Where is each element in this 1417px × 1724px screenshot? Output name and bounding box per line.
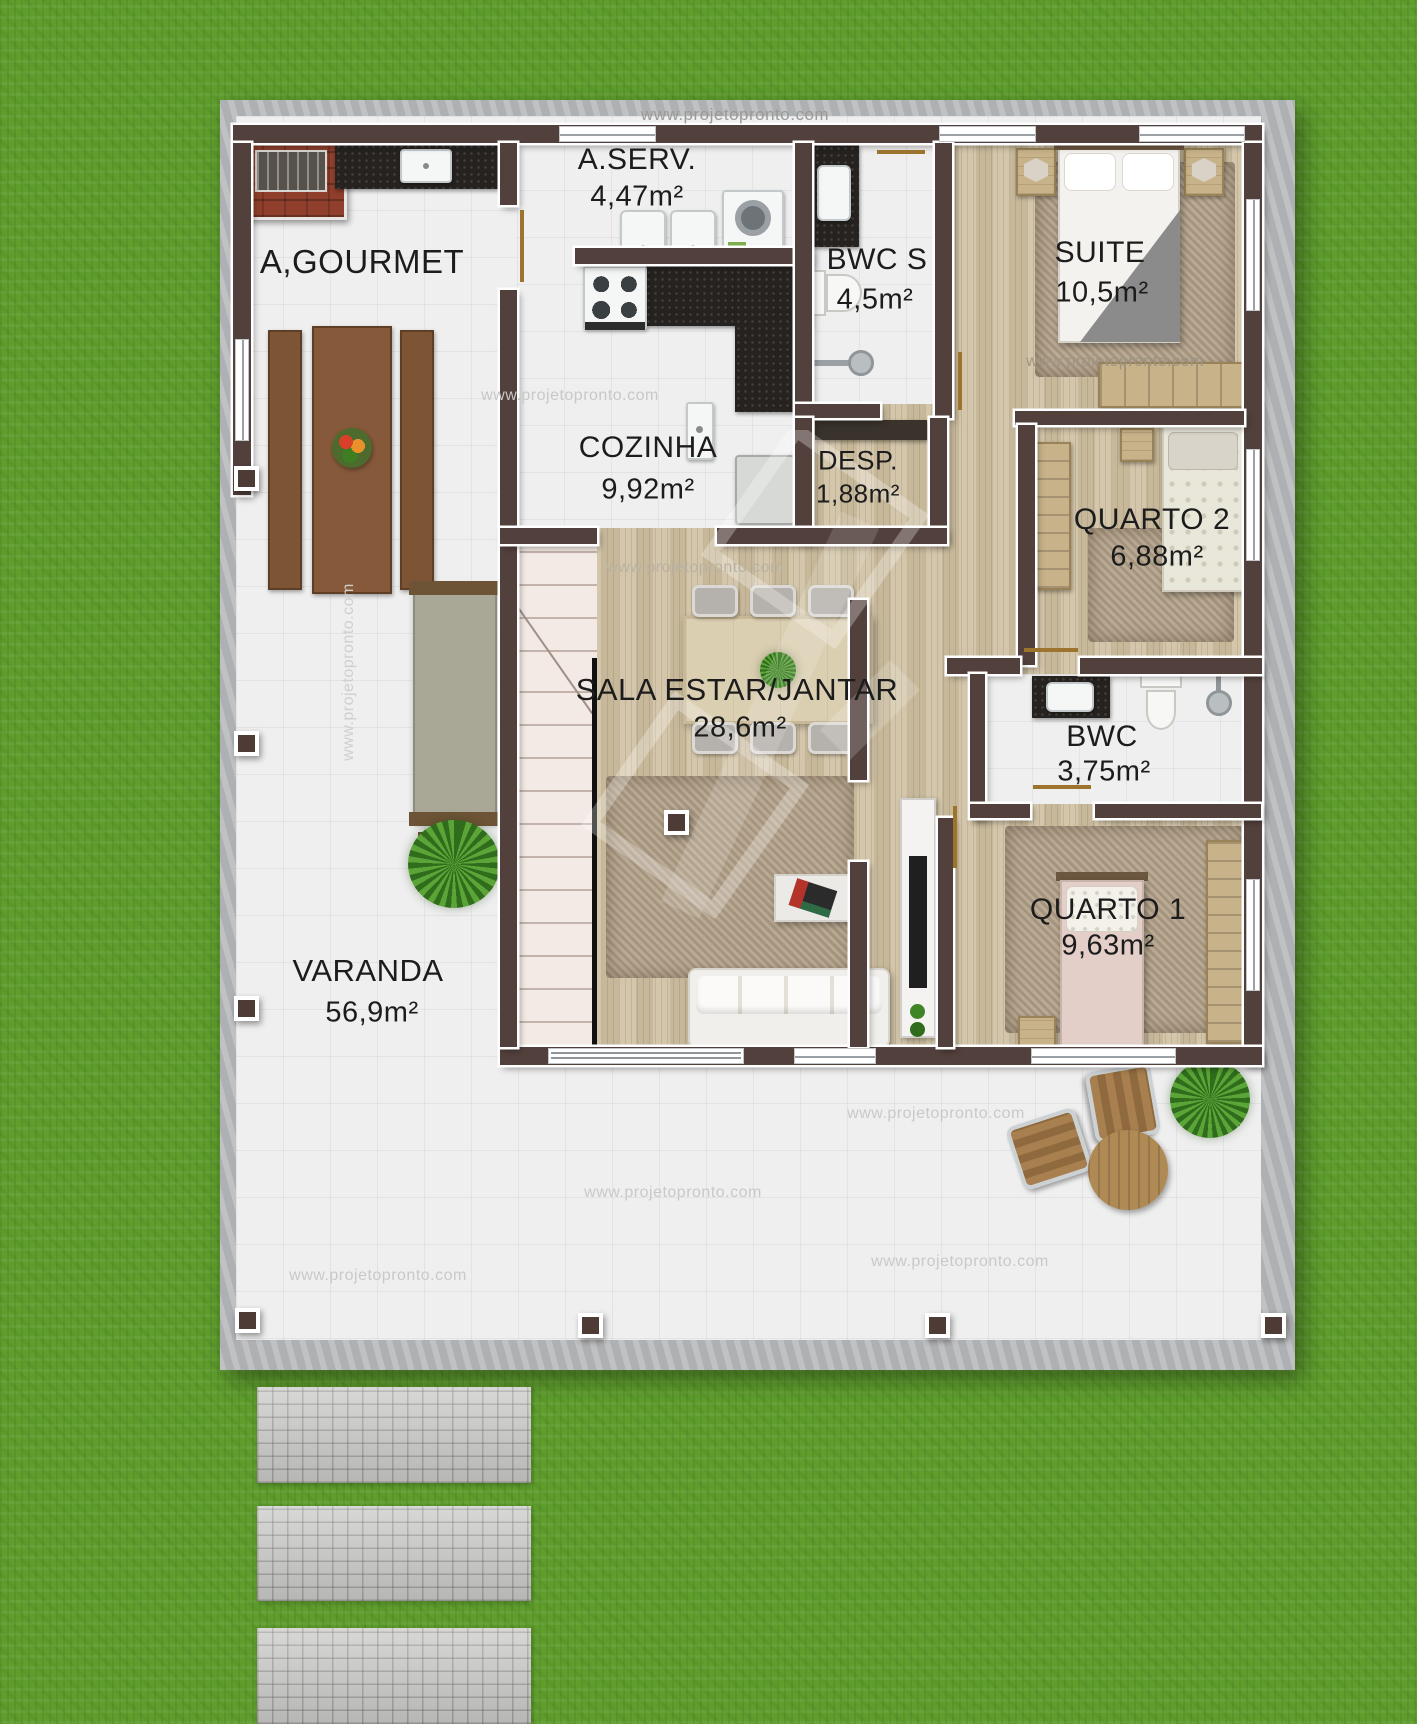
room-label-aserv: A.SERV. <box>578 143 697 177</box>
stove <box>583 266 647 330</box>
door-leaf-bwcs <box>877 150 925 154</box>
stove-front-strip <box>585 322 645 330</box>
gourmet-bench-right <box>400 330 434 590</box>
bwcs-toilet-tank <box>810 270 826 316</box>
room-area-sala: 28,6m² <box>693 712 786 745</box>
room-area-bwcs: 4,5m² <box>837 284 914 317</box>
quarto2-nightstand <box>1120 428 1154 462</box>
room-area-quarto2: 6,88m² <box>1110 541 1203 574</box>
room-area-desp: 1,88m² <box>816 479 900 510</box>
door-leaf-gourmet <box>520 210 524 282</box>
column-bottom-3 <box>1261 1313 1286 1338</box>
watermark-varanda-3: www.projetopronto.com <box>871 1253 1049 1271</box>
floor-plan-canvas: A,GOURMET A.SERV. 4,47m² COZINHA 9,92m² … <box>0 0 1417 1724</box>
window-left-gourmet <box>236 340 248 440</box>
window-right-suite <box>1247 200 1259 310</box>
watermark-varanda-1: www.projetopronto.com <box>847 1105 1025 1123</box>
room-label-bwc: BWC <box>1066 720 1138 754</box>
garden-bench-cap-top <box>409 581 501 595</box>
suite-pillow-2 <box>1122 153 1174 191</box>
window-top-aserv <box>560 127 655 141</box>
watermark-top: www.projetopronto.com <box>641 105 829 125</box>
bwc-toilet-bowl <box>1146 690 1176 730</box>
column-left-2 <box>234 731 259 756</box>
stepping-stone-2 <box>257 1506 531 1601</box>
stepping-stone-1 <box>257 1387 531 1483</box>
room-label-gourmet: A,GOURMET <box>260 243 464 281</box>
wall-quarto2-bottom-b <box>1080 658 1262 674</box>
wall-top <box>233 125 1262 143</box>
window-bottom-quarto1 <box>1032 1049 1175 1063</box>
room-area-cozinha: 9,92m² <box>601 474 694 507</box>
wall-west-upper <box>500 143 517 205</box>
watermark-suite: www.projetopronto.com <box>1026 353 1204 371</box>
room-area-aserv: 4,47m² <box>590 181 683 214</box>
tv-rack-plant-2 <box>910 1022 925 1037</box>
room-area-suite: 10,5m² <box>1055 277 1148 310</box>
column-corner <box>235 1308 260 1333</box>
bwcs-sink <box>817 165 851 221</box>
gourmet-bench-left <box>268 330 302 590</box>
door-leaf-suite <box>958 352 962 410</box>
suite-pillow-1 <box>1064 153 1116 191</box>
watermark-vertical: www.projetopronto.com <box>340 583 358 761</box>
quarto1-nightstand <box>1018 1016 1056 1050</box>
watermark-varanda-2: www.projetopronto.com <box>584 1184 762 1202</box>
column-bottom-2 <box>925 1313 950 1338</box>
watermark-varanda-4: www.projetopronto.com <box>289 1267 467 1285</box>
room-label-quarto2: QUARTO 2 <box>1074 503 1230 537</box>
window-right-quarto1 <box>1247 880 1259 990</box>
wall-bwc-bottom-a <box>970 804 1030 818</box>
room-label-sala: SALA ESTAR/JANTAR <box>576 672 899 708</box>
room-area-quarto1: 9,63m² <box>1061 930 1154 963</box>
watermark-sala: www.projetopronto.com <box>606 559 784 577</box>
room-area-bwc: 3,75m² <box>1057 756 1150 789</box>
column-bottom-1 <box>578 1313 603 1338</box>
window-top-suite <box>1140 127 1244 141</box>
quarto2-wardrobe <box>1035 442 1071 590</box>
wall-bwc-left <box>970 674 985 818</box>
potted-plant-left <box>408 820 500 908</box>
window-bottom-hall <box>795 1049 875 1063</box>
garden-bench <box>413 585 497 822</box>
wall-bwcs-right <box>935 143 952 418</box>
room-area-varanda: 56,9m² <box>325 997 418 1030</box>
room-label-cozinha: COZINHA <box>579 431 718 465</box>
quarto1-wardrobe <box>1206 840 1244 1044</box>
room-label-varanda: VARANDA <box>292 953 443 989</box>
washing-machine-door <box>735 200 771 236</box>
bwc-sink <box>1046 682 1094 712</box>
potted-plant-right <box>1170 1060 1250 1138</box>
column-left-1 <box>234 466 259 491</box>
fruit-platter <box>332 428 372 468</box>
kitchen-counter-side <box>735 262 795 412</box>
door-leaf-quarto2 <box>1024 648 1078 652</box>
wall-bwcs-bottom <box>795 404 880 418</box>
stepping-stone-3 <box>257 1628 531 1724</box>
wall-left-gourmet <box>233 143 251 495</box>
sliding-door-sala <box>549 1049 743 1063</box>
quarto2-pillow <box>1168 432 1238 470</box>
wall-bwcs-left <box>795 143 812 404</box>
room-label-suite: SUITE <box>1055 236 1146 270</box>
bwc-shower-rod <box>1216 672 1221 692</box>
barbecue-grate <box>255 150 327 192</box>
room-label-bwcs: BWC S <box>827 243 928 277</box>
gourmet-sink-drain <box>423 163 429 169</box>
wall-suite-bottom <box>1015 411 1244 425</box>
window-right-quarto2 <box>1247 450 1259 560</box>
column-left-3 <box>234 996 259 1021</box>
room-label-desp: DESP. <box>818 446 898 477</box>
window-top-bwcs <box>940 127 1035 141</box>
wall-bwc-bottom-b <box>1095 804 1261 818</box>
bwcs-shower-head <box>848 350 874 376</box>
watermark-kitchen: www.projetopronto.com <box>481 387 659 405</box>
room-label-quarto1: QUARTO 1 <box>1030 893 1186 927</box>
outdoor-round-table <box>1088 1130 1168 1210</box>
halfwall-aserv <box>575 248 812 264</box>
wall-quarto2-left <box>1018 425 1035 665</box>
bwc-toilet-tank <box>1140 674 1182 688</box>
bwc-shower-head <box>1206 690 1232 716</box>
